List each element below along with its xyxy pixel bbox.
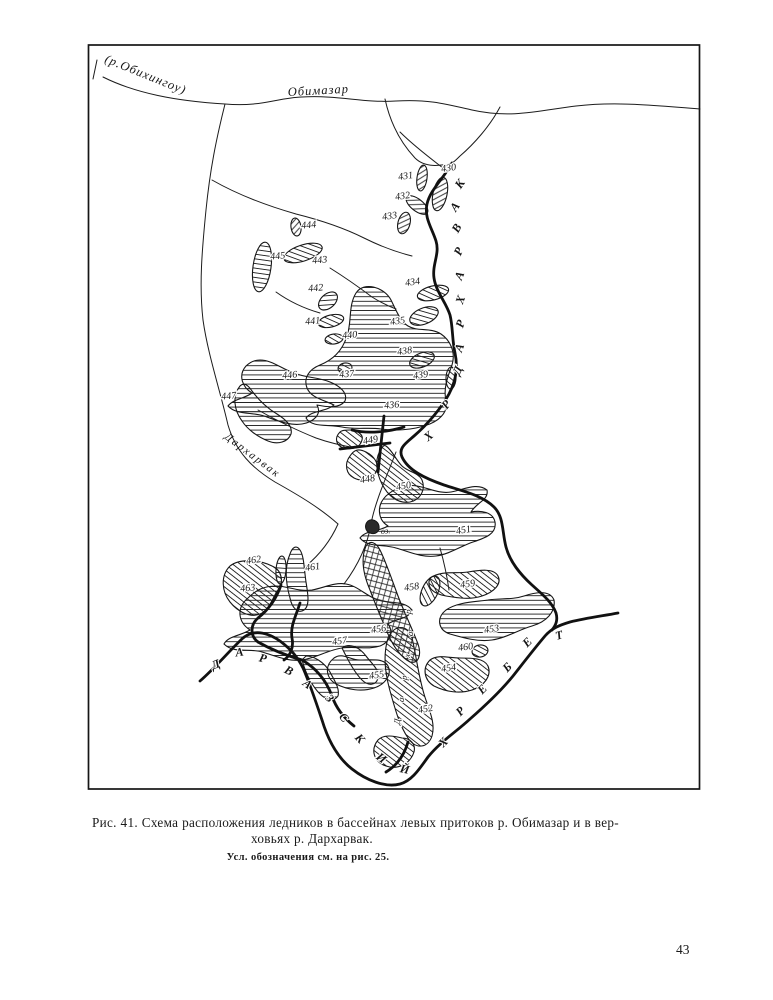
page-number: 43 <box>676 942 690 958</box>
glacier-label-463: 463 <box>240 582 256 594</box>
label-obimazar: Обимазар <box>287 82 349 99</box>
glacier-label-456: 456 <box>370 623 386 636</box>
ridge-letter-В: В <box>281 662 296 679</box>
ridge-letter-Р: Р <box>453 703 469 719</box>
river-obimazar-path <box>103 77 700 114</box>
ridge-letter-А: А <box>446 199 463 214</box>
glacier-label-438: 438 <box>396 345 412 358</box>
glacier-label-431: 431 <box>397 170 413 183</box>
glacier-label-434: 434 <box>404 276 420 289</box>
glacier-label-447: 447 <box>221 390 238 402</box>
glacier-label-436: 436 <box>384 399 400 411</box>
glacier-label-462: 462 <box>245 554 261 567</box>
glacier-label-445: 445 <box>270 250 286 262</box>
ridge-letter-А: А <box>451 269 467 283</box>
label-lake: оз. <box>380 525 390 536</box>
glacier-label-446: 446 <box>282 369 298 381</box>
ridge-letter-Р: Р <box>452 317 468 329</box>
glacier-label-442: 442 <box>308 282 324 294</box>
ridge-letter-Т: Т <box>554 627 565 643</box>
glacier-label-432: 432 <box>394 190 410 203</box>
ridge-letter-Х: Х <box>452 293 469 307</box>
glacier-label-433: 433 <box>381 210 397 223</box>
lake-dot <box>366 520 380 534</box>
glacier-label-454: 454 <box>440 662 456 675</box>
ridge-letter-Е: Е <box>519 634 535 650</box>
glacier-label-458: 458 <box>403 581 419 594</box>
ridge-letter-Р: Р <box>450 244 466 257</box>
glacier-label-439: 439 <box>412 369 428 382</box>
glacier-label-461: 461 <box>304 561 320 574</box>
glacier-label-444: 444 <box>301 219 317 231</box>
book-page: (р.Обихингоу) Обимазар Дархарвак оз. 430… <box>0 0 773 1000</box>
glacier-label-448: 448 <box>359 473 376 486</box>
glacier-label-459: 459 <box>459 578 475 591</box>
glacier-map: (р.Обихингоу) Обимазар Дархарвак оз. 430… <box>0 0 773 1000</box>
glacier-label-443: 443 <box>312 254 328 266</box>
figure-caption-note: Усл. обозначения см. на рис. 25. <box>92 852 524 863</box>
ridge-letter-В: В <box>448 221 465 236</box>
ridge-letter-А: А <box>234 645 245 660</box>
label-obikhingou: (р.Обихингоу) <box>103 52 189 97</box>
glacier-label-440: 440 <box>342 329 358 341</box>
glacier-label-430: 430 <box>440 162 456 175</box>
ridge-letter-Б: Б <box>499 659 515 675</box>
glacier-label-453: 453 <box>483 623 499 636</box>
figure-caption-line1: Рис. 41. Схема расположения ледников в б… <box>92 815 619 831</box>
ridge-letter-Р: Р <box>258 650 269 666</box>
glacier-label-437: 437 <box>339 368 356 380</box>
glacier-label-455: 455 <box>368 669 384 682</box>
glacier-label-435: 435 <box>389 315 405 328</box>
glacier-label-457: 457 <box>331 635 348 648</box>
glacier-label-441: 441 <box>305 315 321 327</box>
glacier-label-460: 460 <box>457 641 473 654</box>
ridge-letter-К: К <box>351 730 368 747</box>
map-edge-arrow <box>93 60 97 79</box>
ridge-letter-К: К <box>451 176 468 192</box>
glacier-label-452: 452 <box>417 703 434 716</box>
figure-caption-line2: ховьях р. Дархарвак. <box>92 831 532 847</box>
